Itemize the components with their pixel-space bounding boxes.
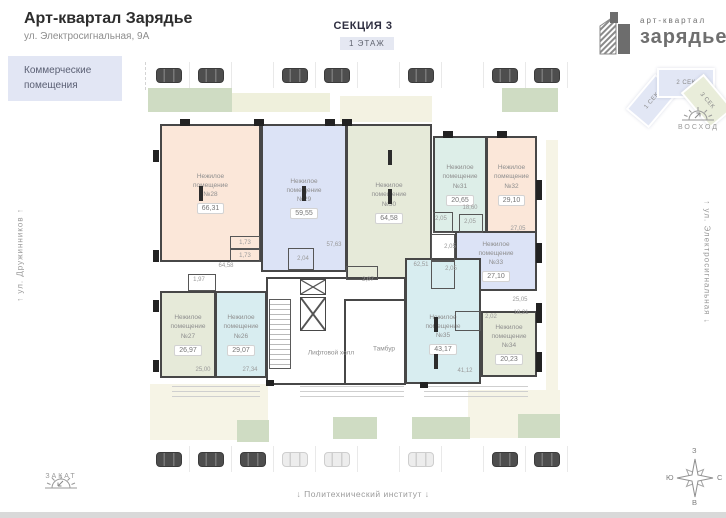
dimension-label: 18,60 <box>462 205 477 211</box>
entrance-steps <box>424 386 528 399</box>
room-area-badge: 26,97 <box>174 345 202 356</box>
interior-wall <box>344 299 406 301</box>
elevator-shaft <box>300 297 326 331</box>
wall-mark <box>443 131 453 138</box>
dimension-label: 1,73 <box>239 240 251 246</box>
room-area-badge: 29,10 <box>498 195 526 206</box>
column-mark <box>388 150 392 165</box>
column-mark <box>434 354 438 369</box>
floor-plan: Нежилое помещение№2866,31Нежилое помещен… <box>0 0 726 518</box>
dimension-label: 25,05 <box>512 297 527 303</box>
dimension-label: 27,34 <box>242 367 257 373</box>
room-area-badge: 27,10 <box>482 271 510 282</box>
room-area-badge: 20,23 <box>495 354 523 365</box>
dimension-label: 25,00 <box>195 367 210 373</box>
hall-label: Тамбур <box>358 344 410 353</box>
elevator-shaft <box>300 279 326 295</box>
dimension-label: 18,21 <box>513 310 528 316</box>
dimension-label: 2,02 <box>485 314 497 320</box>
room-label: Нежилое помещение№27 <box>161 313 215 340</box>
room-label: Нежилое помещение№32 <box>485 163 539 190</box>
room-area-badge: 64,58 <box>375 213 403 224</box>
room-26[interactable]: Нежилое помещение№2629,07 <box>215 291 267 378</box>
dimension-label: 1,73 <box>239 253 251 259</box>
wall-mark <box>342 119 352 126</box>
wall-mark <box>254 119 264 126</box>
room-27[interactable]: Нежилое помещение№2726,97 <box>160 291 216 378</box>
room-area-badge: 20,65 <box>446 195 474 206</box>
wall-mark <box>180 119 190 126</box>
dimension-label: 2,04 <box>297 256 309 262</box>
dimension-label: 2,05 <box>464 219 476 225</box>
wall-mark <box>266 380 274 386</box>
dimension-label: 2,05 <box>445 266 457 272</box>
room-34[interactable]: Нежилое помещение№3420,23 <box>481 311 537 377</box>
dimension-label: 2,07 <box>362 277 374 283</box>
wall-mark <box>536 303 542 323</box>
utility-room <box>455 311 481 331</box>
room-label: Нежилое помещение№34 <box>482 323 536 350</box>
wall-mark <box>536 180 542 200</box>
hall-label: Лифтовой холл <box>305 348 357 357</box>
wall-mark <box>153 150 159 162</box>
wall-mark <box>153 360 159 372</box>
dimension-label: 2,05 <box>435 216 447 222</box>
wall-mark <box>153 250 159 262</box>
room-label: Нежилое помещение№26 <box>214 313 268 340</box>
room-32[interactable]: Нежилое помещение№3229,10 <box>486 136 537 233</box>
dimension-label: 41,12 <box>457 368 472 374</box>
dimension-label: 2,05 <box>444 244 456 250</box>
room-area-badge: 66,31 <box>197 203 225 214</box>
wall-mark <box>420 382 428 388</box>
wall-mark <box>497 131 507 138</box>
column-mark <box>199 186 203 201</box>
wall-mark <box>153 300 159 312</box>
entrance-steps <box>300 386 404 399</box>
room-label: Нежилое помещение№28 <box>184 172 238 199</box>
column-mark <box>434 317 438 332</box>
interior-wall <box>344 299 346 383</box>
wall-mark <box>536 243 542 263</box>
entrance-steps <box>172 386 260 399</box>
room-label: Нежилое помещение№31 <box>433 163 487 190</box>
room-area-badge: 59,55 <box>290 208 318 219</box>
wall-mark <box>325 119 335 126</box>
dimension-label: 27,05 <box>510 226 525 232</box>
dimension-label: 57,63 <box>326 242 341 248</box>
wall-mark <box>536 352 542 372</box>
room-area-badge: 29,07 <box>227 345 255 356</box>
dimension-label: 62,51 <box>413 262 428 268</box>
dimension-label: 64,58 <box>218 263 233 269</box>
column-mark <box>388 189 392 204</box>
stairs <box>269 299 291 369</box>
dimension-label: 1,97 <box>193 277 205 283</box>
column-mark <box>302 186 306 201</box>
